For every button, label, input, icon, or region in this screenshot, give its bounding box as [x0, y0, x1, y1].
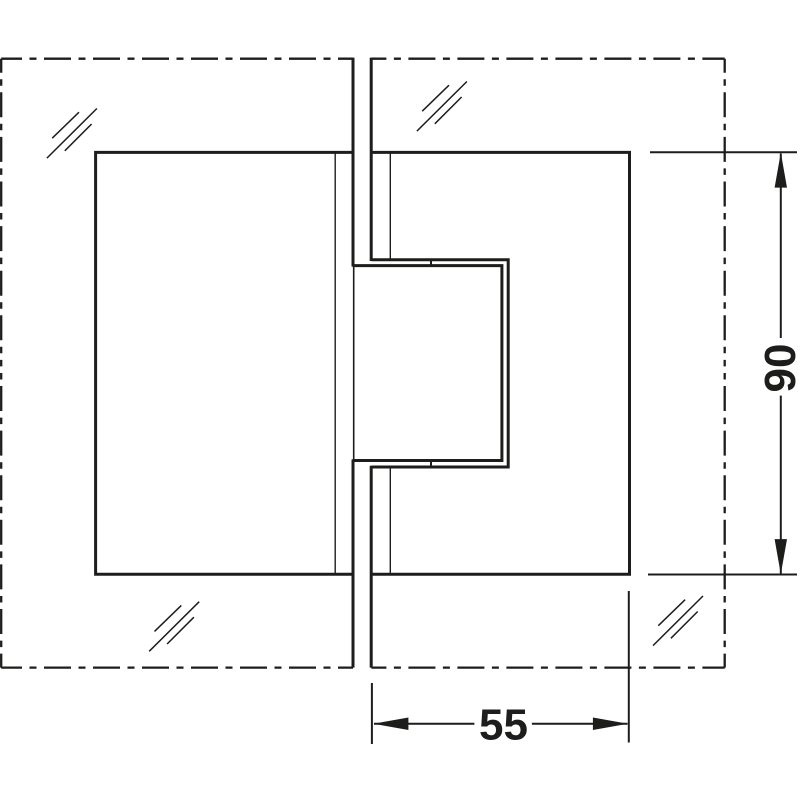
svg-text:55: 55 — [479, 701, 528, 750]
svg-text:90: 90 — [756, 344, 800, 393]
